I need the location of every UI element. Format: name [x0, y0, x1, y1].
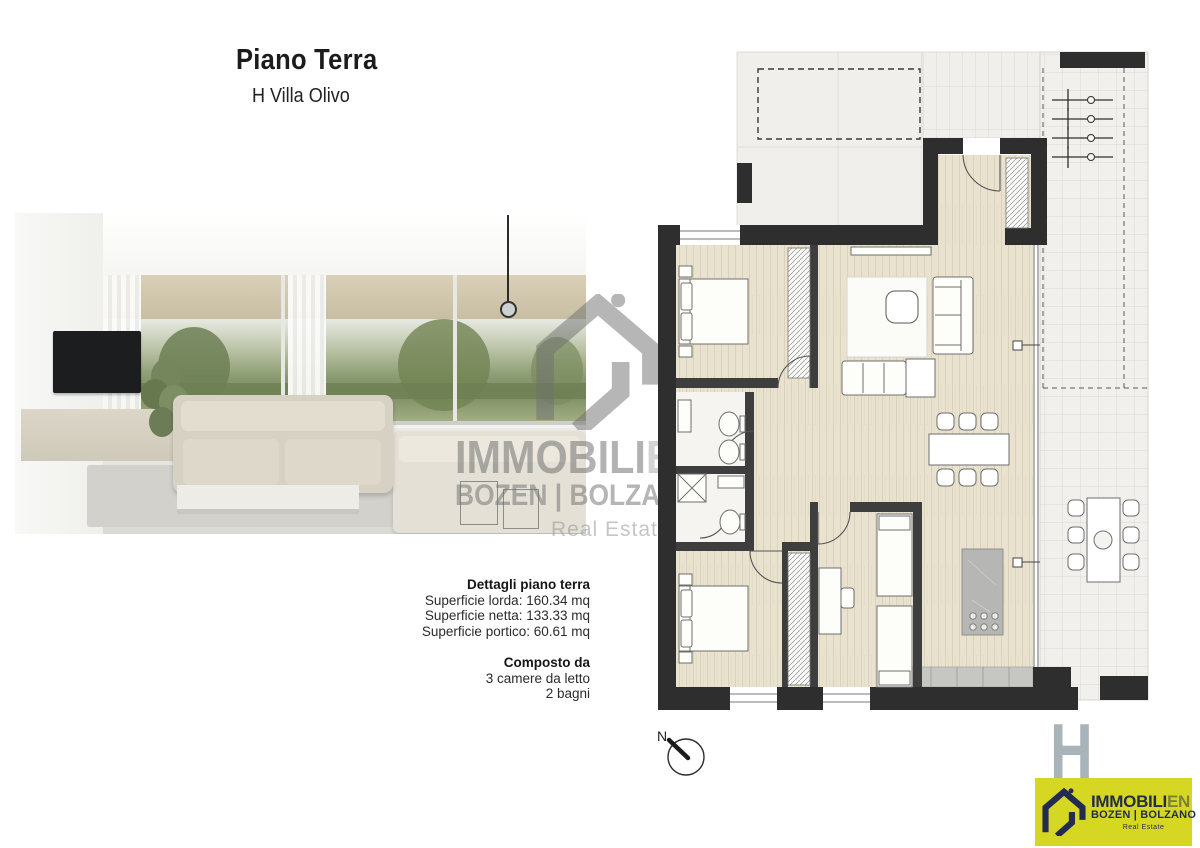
compass: N	[657, 728, 704, 775]
logo-house-icon	[1042, 788, 1086, 836]
photo-pendant-lamp	[507, 215, 509, 303]
composition-line: 3 camere da letto	[290, 671, 590, 687]
bedroom-2-furniture	[679, 574, 748, 663]
details-heading: Dettagli piano terra	[290, 577, 590, 593]
logo-cities: BOZEN | BOLZANO	[1091, 810, 1196, 822]
logo-tagline: Real Estate	[1091, 824, 1196, 831]
page-subtitle: H Villa Olivo	[252, 85, 350, 108]
dining-set	[929, 413, 1009, 486]
agency-logo: IMMOBILIEN BOZEN | BOLZANO Real Estate	[1035, 778, 1192, 846]
photo-pendant-bulb	[500, 301, 517, 318]
east-terrace	[1040, 52, 1148, 700]
details-line: Superficie portico: 60.61 mq	[290, 624, 590, 640]
floor-plan: N	[640, 40, 1160, 780]
bedroom-1-furniture	[679, 266, 748, 357]
composition-heading: Composto da	[290, 655, 590, 671]
composition-line: 2 bagni	[290, 686, 590, 702]
outdoor-dining-set	[1068, 498, 1139, 582]
photo-side-table	[503, 489, 539, 529]
page-title: Piano Terra	[236, 44, 377, 77]
photo-side-table	[460, 481, 498, 525]
compass-north-label: N	[657, 728, 667, 744]
photo-tv-screen	[53, 331, 141, 393]
details-line: Superficie lorda: 160.34 mq	[290, 593, 590, 609]
photo-sofa-center	[173, 395, 393, 493]
logo-text: IMMOBILIEN BOZEN | BOLZANO Real Estate	[1091, 793, 1196, 832]
photo-window-mullion	[453, 275, 457, 425]
floor-details: Dettagli piano terra Superficie lorda: 1…	[290, 577, 590, 702]
details-line: Superficie netta: 133.33 mq	[290, 608, 590, 624]
photo-coffee-table	[177, 485, 359, 514]
brochure-page: Piano Terra H Villa Olivo	[0, 0, 1200, 848]
kitchen-island	[962, 549, 1003, 635]
logo-brand: IMMOBILIEN	[1091, 793, 1196, 811]
interior-photo	[15, 213, 586, 534]
